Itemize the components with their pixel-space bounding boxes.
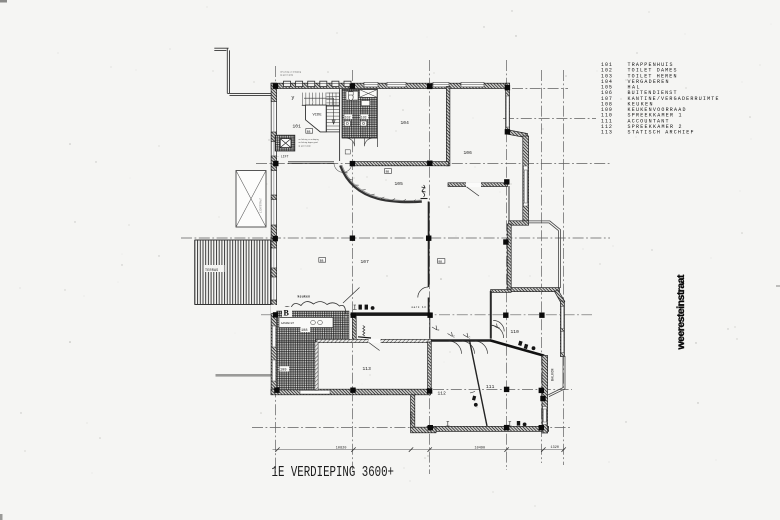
svg-text:AANRECHT: AANRECHT — [281, 322, 295, 325]
svg-text:BALKON: BALKON — [550, 369, 554, 381]
svg-text:weeresteinstraat: weeresteinstraat — [675, 274, 687, 351]
svg-text:B: B — [284, 309, 290, 318]
svg-text:c: c — [469, 336, 471, 340]
svg-text:BB: BB — [320, 259, 324, 262]
svg-text:103: 103 — [361, 115, 367, 119]
svg-text:1E VERDIEPING 3600+: 1E VERDIEPING 3600+ — [272, 463, 395, 481]
svg-text:BB: BB — [307, 130, 311, 133]
svg-text:BB: BB — [386, 171, 390, 174]
svg-text:op aparte groep: op aparte groep — [299, 144, 311, 147]
svg-text:mark 13: mark 13 — [412, 305, 427, 309]
svg-text:113: 113 — [601, 130, 613, 136]
svg-text:c: c — [498, 326, 500, 330]
svg-text:102: 102 — [345, 115, 351, 119]
svg-text:108: 108 — [301, 329, 307, 333]
svg-text:101: 101 — [293, 124, 302, 130]
svg-text:110: 110 — [511, 329, 520, 335]
svg-text:107: 107 — [361, 259, 370, 265]
svg-text:c: c — [438, 328, 440, 332]
svg-text:keuken: keuken — [298, 295, 311, 299]
svg-text:- LIFT: - LIFT — [277, 155, 289, 159]
svg-text:y: y — [292, 95, 295, 101]
svg-text:10820: 10820 — [336, 446, 347, 450]
svg-text:op aparte groep: op aparte groep — [280, 74, 294, 77]
svg-text:104: 104 — [401, 120, 410, 126]
svg-text:TERRAS: TERRAS — [205, 269, 218, 273]
svg-text:112: 112 — [438, 390, 447, 396]
svg-text:BB: BB — [439, 260, 443, 263]
svg-text:c: c — [453, 335, 455, 339]
svg-text:109: 109 — [280, 369, 286, 373]
svg-text:113: 113 — [363, 366, 372, 372]
svg-text:1320: 1320 — [551, 446, 560, 450]
svg-text:111: 111 — [486, 384, 495, 390]
svg-text:10490: 10490 — [475, 446, 486, 450]
svg-text:LICHTSTRAAT: LICHTSTRAAT — [260, 197, 263, 213]
svg-text:106: 106 — [464, 150, 473, 156]
svg-text:VIDE: VIDE — [313, 114, 323, 118]
svg-text:STATISCH ARCHIEF: STATISCH ARCHIEF — [628, 130, 694, 136]
svg-text:105: 105 — [395, 181, 404, 187]
svg-text:BALKON: BALKON — [409, 412, 413, 424]
